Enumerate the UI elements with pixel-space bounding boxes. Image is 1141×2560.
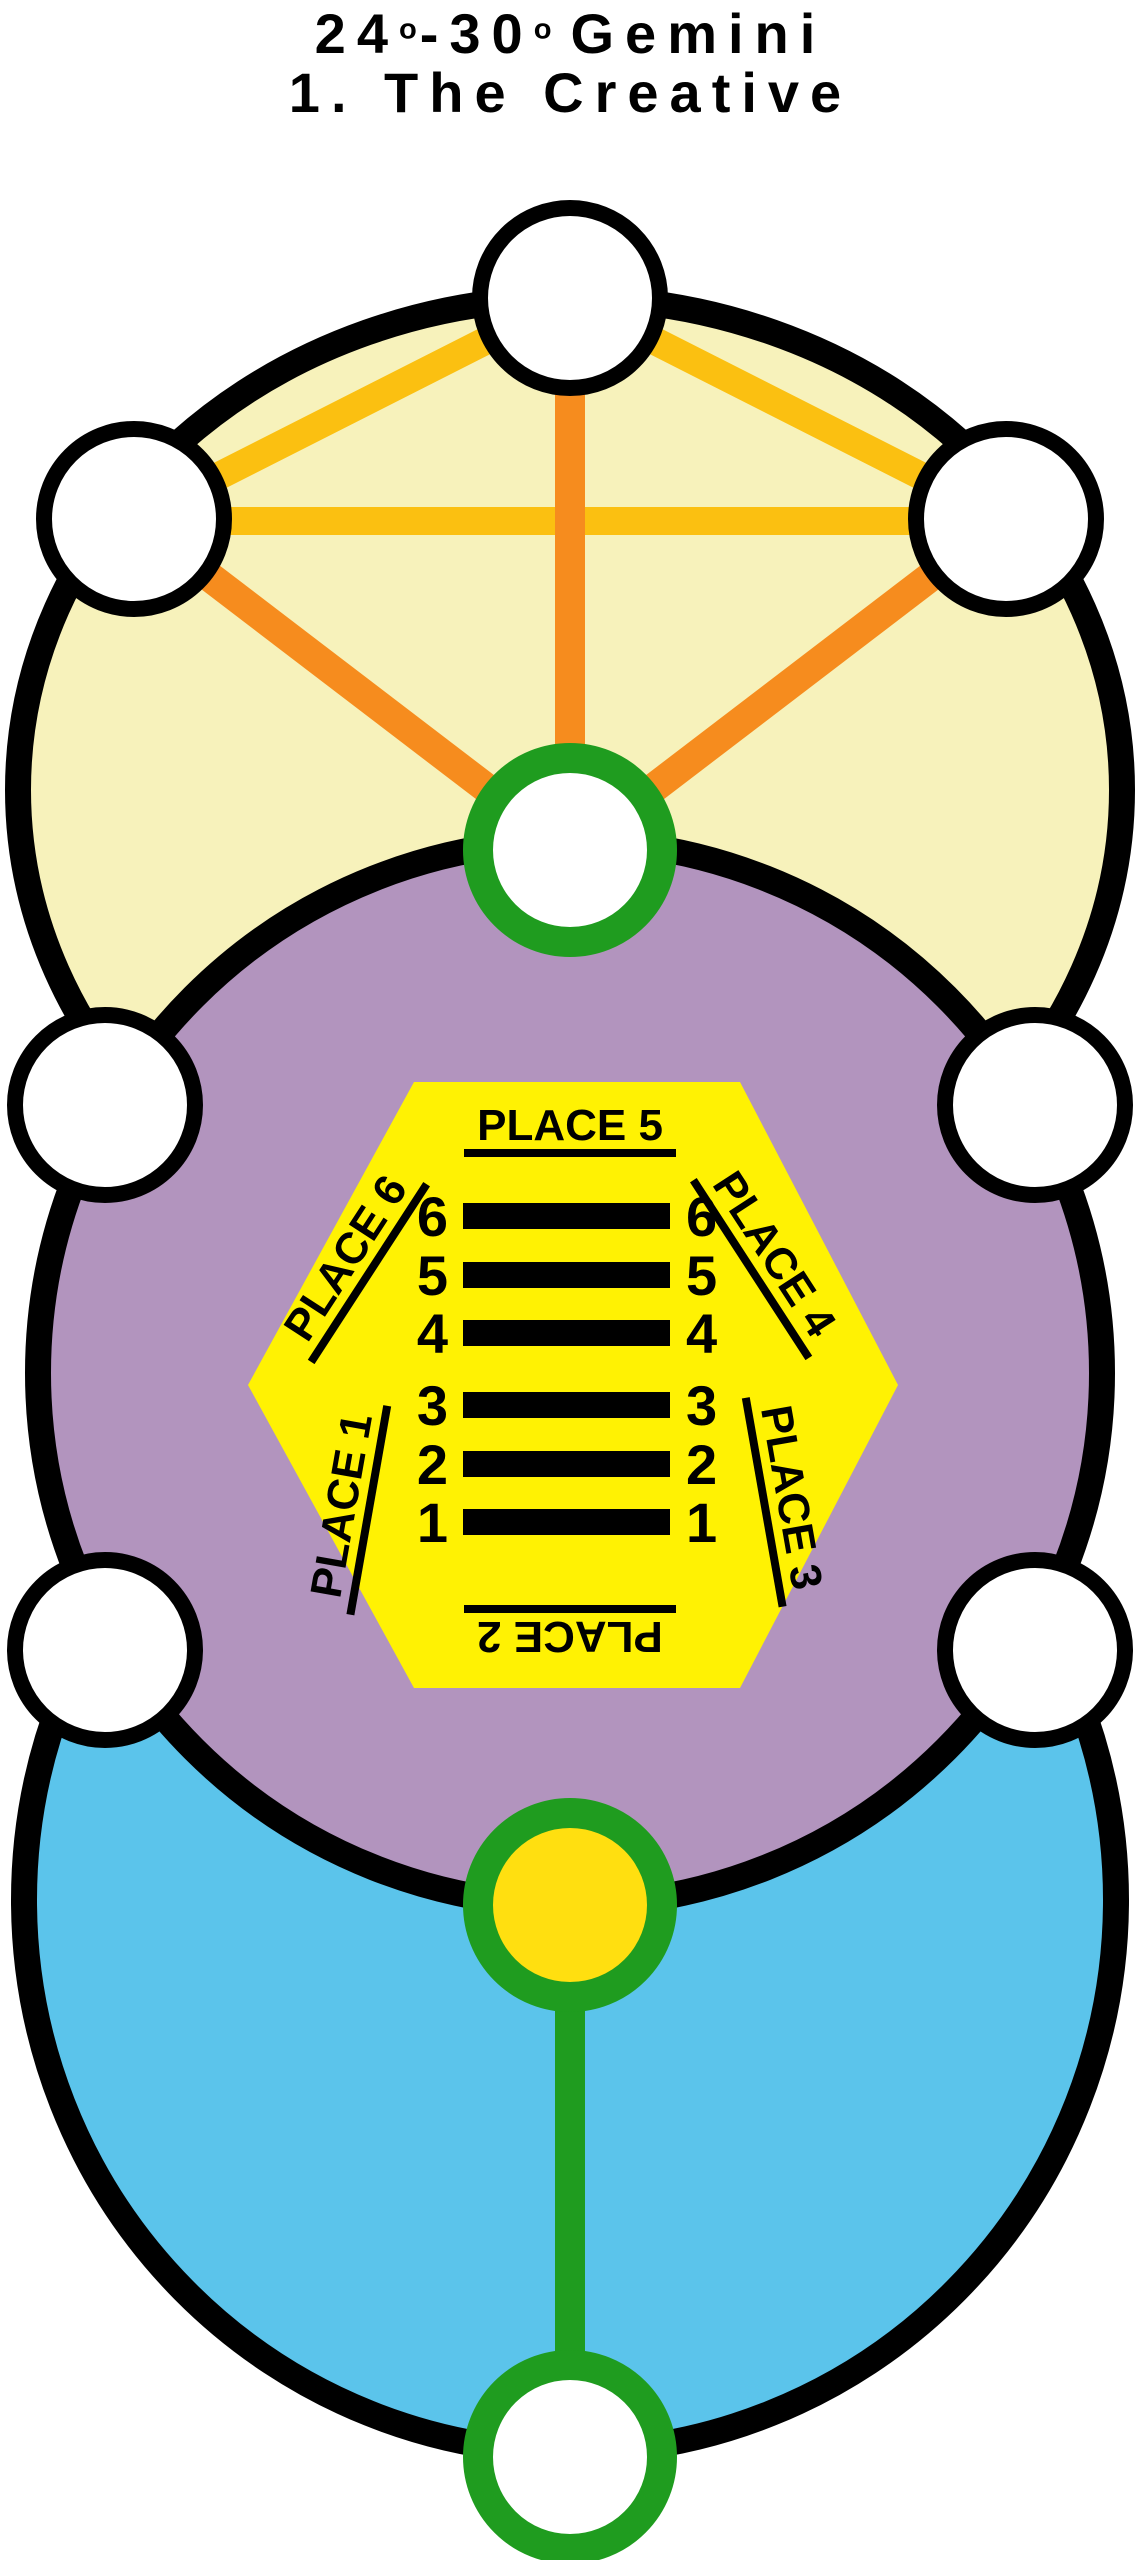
degree-separator: - xyxy=(420,2,450,65)
hexagram-line-number-left-5: 5 xyxy=(417,1244,448,1307)
hexagram-line-number-right-2: 2 xyxy=(686,1433,717,1496)
hexagram-line-number-right-1: 1 xyxy=(686,1491,717,1554)
node-upper-left xyxy=(44,429,224,609)
degree-end: 30 xyxy=(449,2,533,65)
hexagram-line-number-left-2: 2 xyxy=(417,1433,448,1496)
degree-symbol: o xyxy=(534,13,555,45)
place-label-5-text: PLACE 5 xyxy=(477,1101,663,1150)
zodiac-sign: Gemini xyxy=(570,2,826,65)
place-label-5: PLACE 5 xyxy=(464,1101,676,1153)
node-lower-left xyxy=(15,1560,195,1740)
degree-symbol: o xyxy=(399,13,420,45)
hexagram-line-number-left-3: 3 xyxy=(417,1374,448,1437)
title-degrees-line: 24o-30oGemini xyxy=(0,4,1141,63)
hexagram-line-number-left-1: 1 xyxy=(417,1491,448,1554)
node-yellow-green-ring xyxy=(478,1813,662,1997)
hexagram-line-number-left-4: 4 xyxy=(417,1302,448,1365)
degree-start: 24 xyxy=(315,2,399,65)
diagram-canvas: 665544332211 PLACE 5 PLACE 6 PLACE 4 PLA… xyxy=(0,0,1141,2560)
node-bottom-green-ring xyxy=(478,2365,662,2549)
node-mid-right xyxy=(945,1015,1125,1195)
hexagram-line-number-right-5: 5 xyxy=(686,1244,717,1307)
node-upper-right xyxy=(916,429,1096,609)
page-title: 24o-30oGemini 1. The Creative xyxy=(0,4,1141,123)
node-lower-right xyxy=(945,1560,1125,1740)
title-hexagram-name: 1. The Creative xyxy=(0,63,1141,122)
hexagram-line-4 xyxy=(463,1320,670,1346)
node-center-green-ring xyxy=(478,758,662,942)
node-mid-left xyxy=(15,1015,195,1195)
hexagram-line-2 xyxy=(463,1451,670,1477)
hexagram-line-number-right-3: 3 xyxy=(686,1374,717,1437)
hexagram-line-5 xyxy=(463,1262,670,1288)
place-label-2-text: PLACE 2 xyxy=(477,1612,663,1661)
hexagram-line-3 xyxy=(463,1392,670,1418)
place-label-2: PLACE 2 xyxy=(464,1609,676,1661)
hexagram-line-6 xyxy=(463,1203,670,1229)
hexagram-line-number-right-4: 4 xyxy=(686,1302,717,1365)
hexagram-line-1 xyxy=(463,1509,670,1535)
node-top xyxy=(480,208,660,388)
